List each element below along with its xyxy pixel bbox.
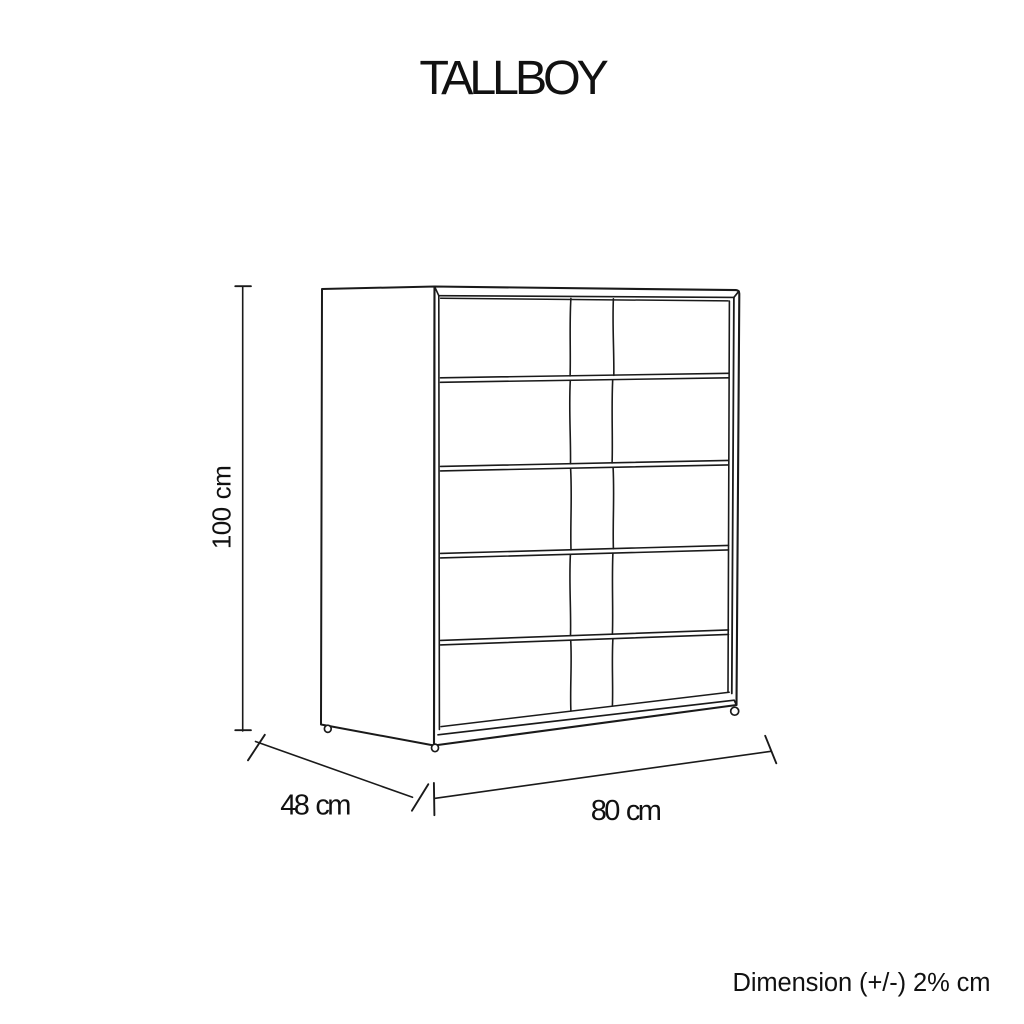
svg-text:TALLBOY: TALLBOY [419,51,608,105]
svg-text:48 cm: 48 cm [280,790,350,822]
svg-text:Dimension (+/-) 2% cm: Dimension (+/-) 2% cm [733,969,991,997]
svg-text:100 cm: 100 cm [207,466,237,549]
svg-text:80 cm: 80 cm [591,795,661,827]
